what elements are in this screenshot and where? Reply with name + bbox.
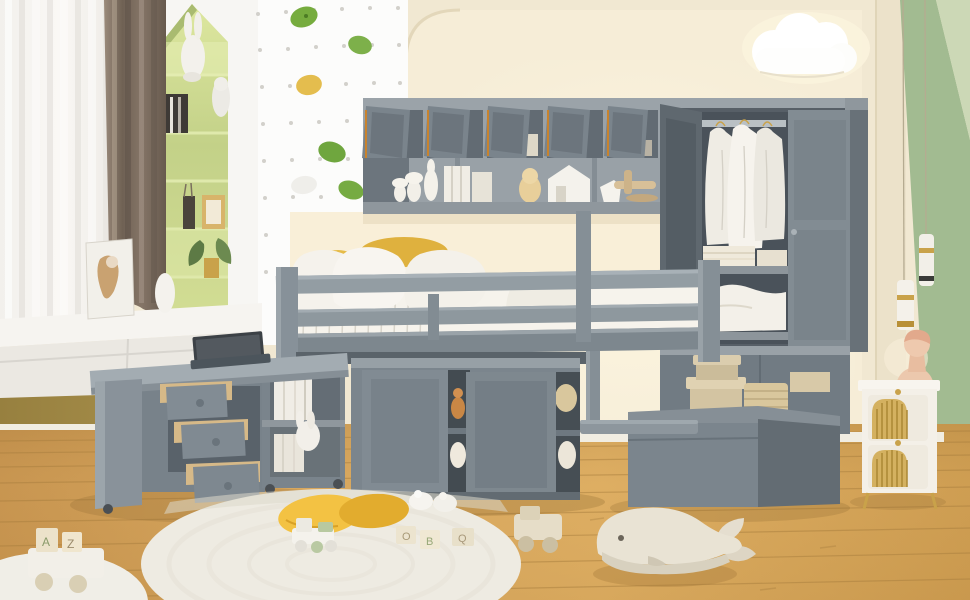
svg-text:Z: Z	[67, 537, 74, 551]
svg-text:A: A	[42, 535, 50, 549]
svg-text:B: B	[426, 536, 433, 548]
svg-text:O: O	[402, 531, 411, 543]
svg-text:Q: Q	[458, 533, 467, 545]
